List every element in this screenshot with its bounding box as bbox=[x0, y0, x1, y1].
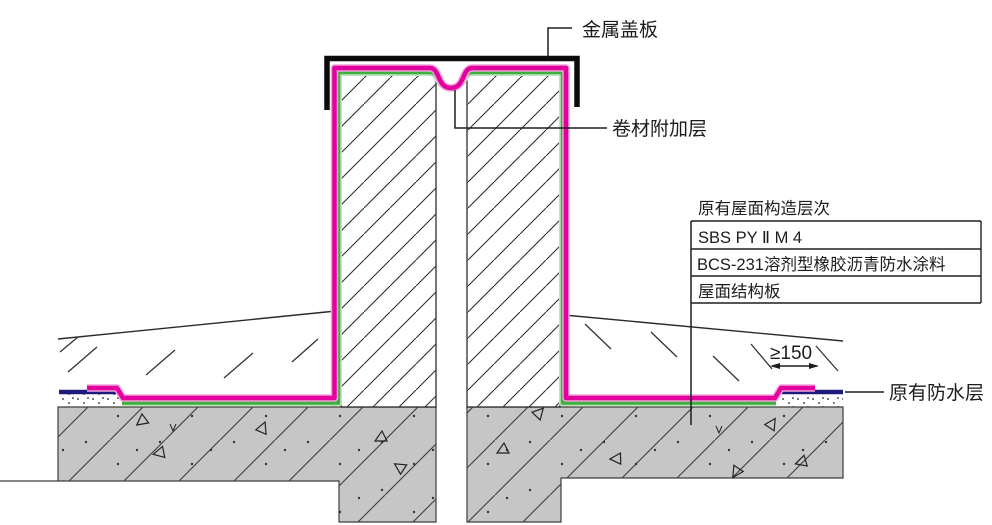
expansion-joint-wall-right bbox=[467, 74, 560, 407]
label-existing-waterproofing: 原有防水层 bbox=[889, 382, 984, 404]
detail-drawing-canvas: ≥150 bbox=[0, 0, 992, 525]
table-row-bcs-coating: BCS-231溶剂型橡胶沥青防水涂料 bbox=[697, 255, 945, 274]
existing-layers-right bbox=[781, 392, 843, 407]
roof-expansion-joint-detail-drawing: ≥150 bbox=[0, 0, 992, 525]
table-row-structural-slab: 屋面结构板 bbox=[698, 282, 781, 301]
expansion-joint-wall-left bbox=[341, 74, 436, 407]
label-metal-cover-plate: 金属盖板 bbox=[582, 19, 658, 41]
label-membrane-additional-layer: 卷材附加层 bbox=[612, 118, 707, 140]
table-row-sbs: SBS PY Ⅱ M 4 bbox=[698, 229, 802, 247]
table-title: 原有屋面构造层次 bbox=[698, 199, 830, 218]
dimension-text: ≥150 bbox=[770, 343, 812, 364]
existing-layers-left bbox=[59, 392, 120, 406]
